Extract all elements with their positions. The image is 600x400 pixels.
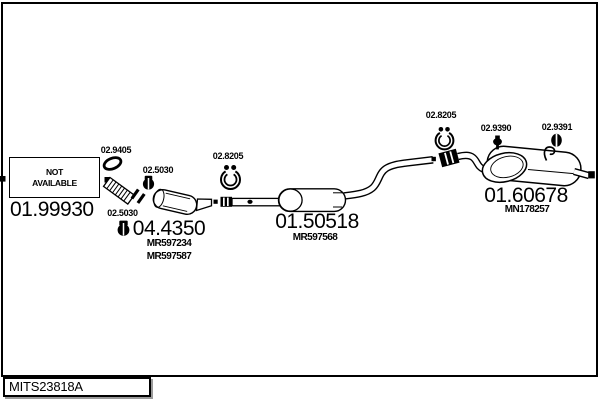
part-number-centre-silencer: 01.50518	[275, 211, 359, 232]
part-number-gasket: 02.9405	[101, 146, 131, 155]
rear-inlet-pipe	[458, 155, 484, 169]
oem-ref-rear-silencer: MN178257	[505, 205, 550, 215]
part-number-clamp-front-upper: 02.5030	[143, 166, 173, 175]
oem-ref-centre-silencer: MR597568	[293, 233, 338, 243]
pipe-clamp-icon	[143, 176, 154, 190]
drawing-code-box: MITS23818A	[3, 377, 151, 397]
centre-silencer-body	[279, 189, 346, 212]
gasket-ring-icon	[102, 155, 122, 171]
exhaust-clamp-icon	[436, 127, 454, 149]
catalytic-converter-body	[151, 188, 211, 216]
part-number-rear-silencer: 01.60678	[484, 185, 568, 206]
part-number-front-pipe: 01.99930	[10, 199, 94, 220]
exhaust-clamp-icon	[221, 165, 240, 189]
oem-ref-catalytic-1: MR597234	[147, 239, 192, 249]
not-available-line2: AVAILABLE	[32, 178, 77, 189]
centre-pipe	[232, 198, 281, 205]
oem-ref-catalytic-2: MR597587	[147, 252, 192, 262]
pipe-clamp-icon	[118, 221, 130, 236]
intermediate-pipe	[344, 160, 433, 196]
front-flange-joint	[132, 190, 144, 204]
part-number-clamp-centre: 02.8205	[213, 152, 243, 161]
not-available-box: NOT AVAILABLE	[9, 157, 100, 198]
part-number-hanger-pin: 02.9390	[481, 124, 511, 133]
weld-dot	[247, 200, 252, 204]
part-number-hanger-grommet: 02.9391	[542, 123, 572, 132]
centre-flange-joint	[214, 197, 233, 207]
rubber-grommet-icon	[551, 134, 562, 147]
drawing-code: MITS23818A	[9, 379, 83, 394]
frame-connector-marker	[0, 176, 6, 182]
flex-pipe	[104, 178, 135, 205]
rear-silencer-body	[479, 145, 582, 187]
not-available-line1: NOT	[46, 167, 63, 178]
exhaust-parts-diagram: NOT AVAILABLE 02.9405 02.5030 02.5030 02…	[0, 0, 600, 400]
part-number-catalytic-converter: 04.4350	[133, 218, 205, 239]
rear-flange-joint	[432, 149, 460, 168]
tailpipe-end-marker	[588, 171, 595, 178]
part-number-clamp-rear: 02.8205	[426, 111, 456, 120]
